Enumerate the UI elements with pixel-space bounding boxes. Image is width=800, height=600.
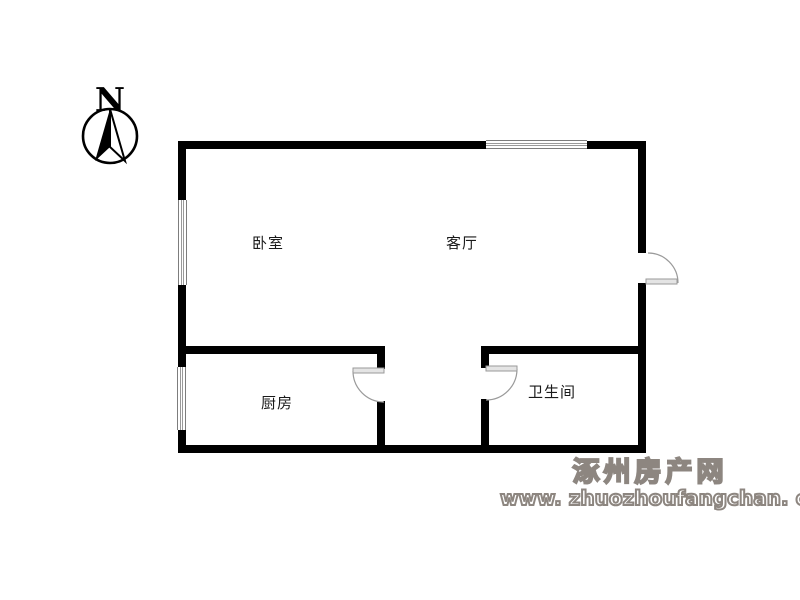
bathroom-door-arc-icon — [486, 369, 517, 400]
door-symbols-layer — [0, 0, 800, 600]
floor-plan-canvas: N 卧室 客厅 厨房 卫生间 涿州房产网 www. zhuozhoufan — [0, 0, 800, 600]
bathroom-door-leaf-icon — [486, 366, 517, 371]
watermark-site-name: 涿州房产网 — [500, 458, 800, 487]
watermark-site-url: www. zhuozhoufangchan. com — [500, 487, 800, 510]
watermark: 涿州房产网 www. zhuozhoufangchan. com — [500, 458, 800, 510]
room-label-kitchen: 厨房 — [261, 395, 293, 411]
room-label-living-room: 客厅 — [446, 235, 478, 251]
kitchen-door-arc-icon — [353, 371, 384, 402]
kitchen-door-leaf-icon — [353, 368, 384, 373]
entry-door-leaf-icon — [646, 279, 677, 284]
room-label-bathroom: 卫生间 — [528, 384, 576, 400]
room-label-bedroom: 卧室 — [252, 235, 284, 251]
